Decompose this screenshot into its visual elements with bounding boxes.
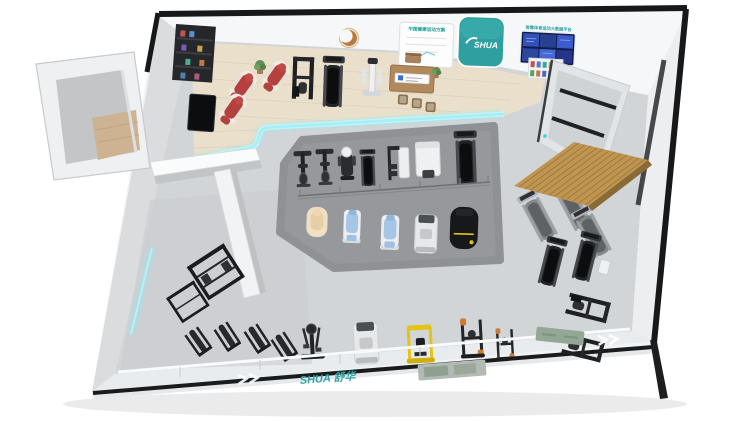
svg-text:SHUA: SHUA <box>474 40 498 51</box>
test-station <box>415 142 440 179</box>
central-testing-island <box>280 126 500 268</box>
moon-wall-logo <box>339 29 358 48</box>
trainer-machine <box>353 322 379 365</box>
corner-post-bottom-right <box>650 340 668 399</box>
stool <box>412 98 423 109</box>
left-wall-tv <box>187 94 215 132</box>
massage-bed <box>449 207 478 250</box>
floorplan-render: 中国健康运动方案 SHUA 智慧体育运动大数据平台 <box>0 0 750 421</box>
desk-banner <box>395 73 429 84</box>
stool <box>425 102 436 113</box>
floorplan-svg: 中国健康运动方案 SHUA 智慧体育运动大数据平台 <box>0 0 750 421</box>
testing-chair <box>380 215 400 250</box>
building-shadow <box>63 391 687 417</box>
left-wall-cabinet <box>172 24 216 83</box>
therapy-machine <box>414 215 437 254</box>
brand-panel: SHUA <box>457 16 505 68</box>
stool <box>398 94 409 105</box>
annex-storage-room <box>36 52 150 180</box>
testing-chair <box>342 210 361 244</box>
recliner-chair <box>306 207 328 238</box>
